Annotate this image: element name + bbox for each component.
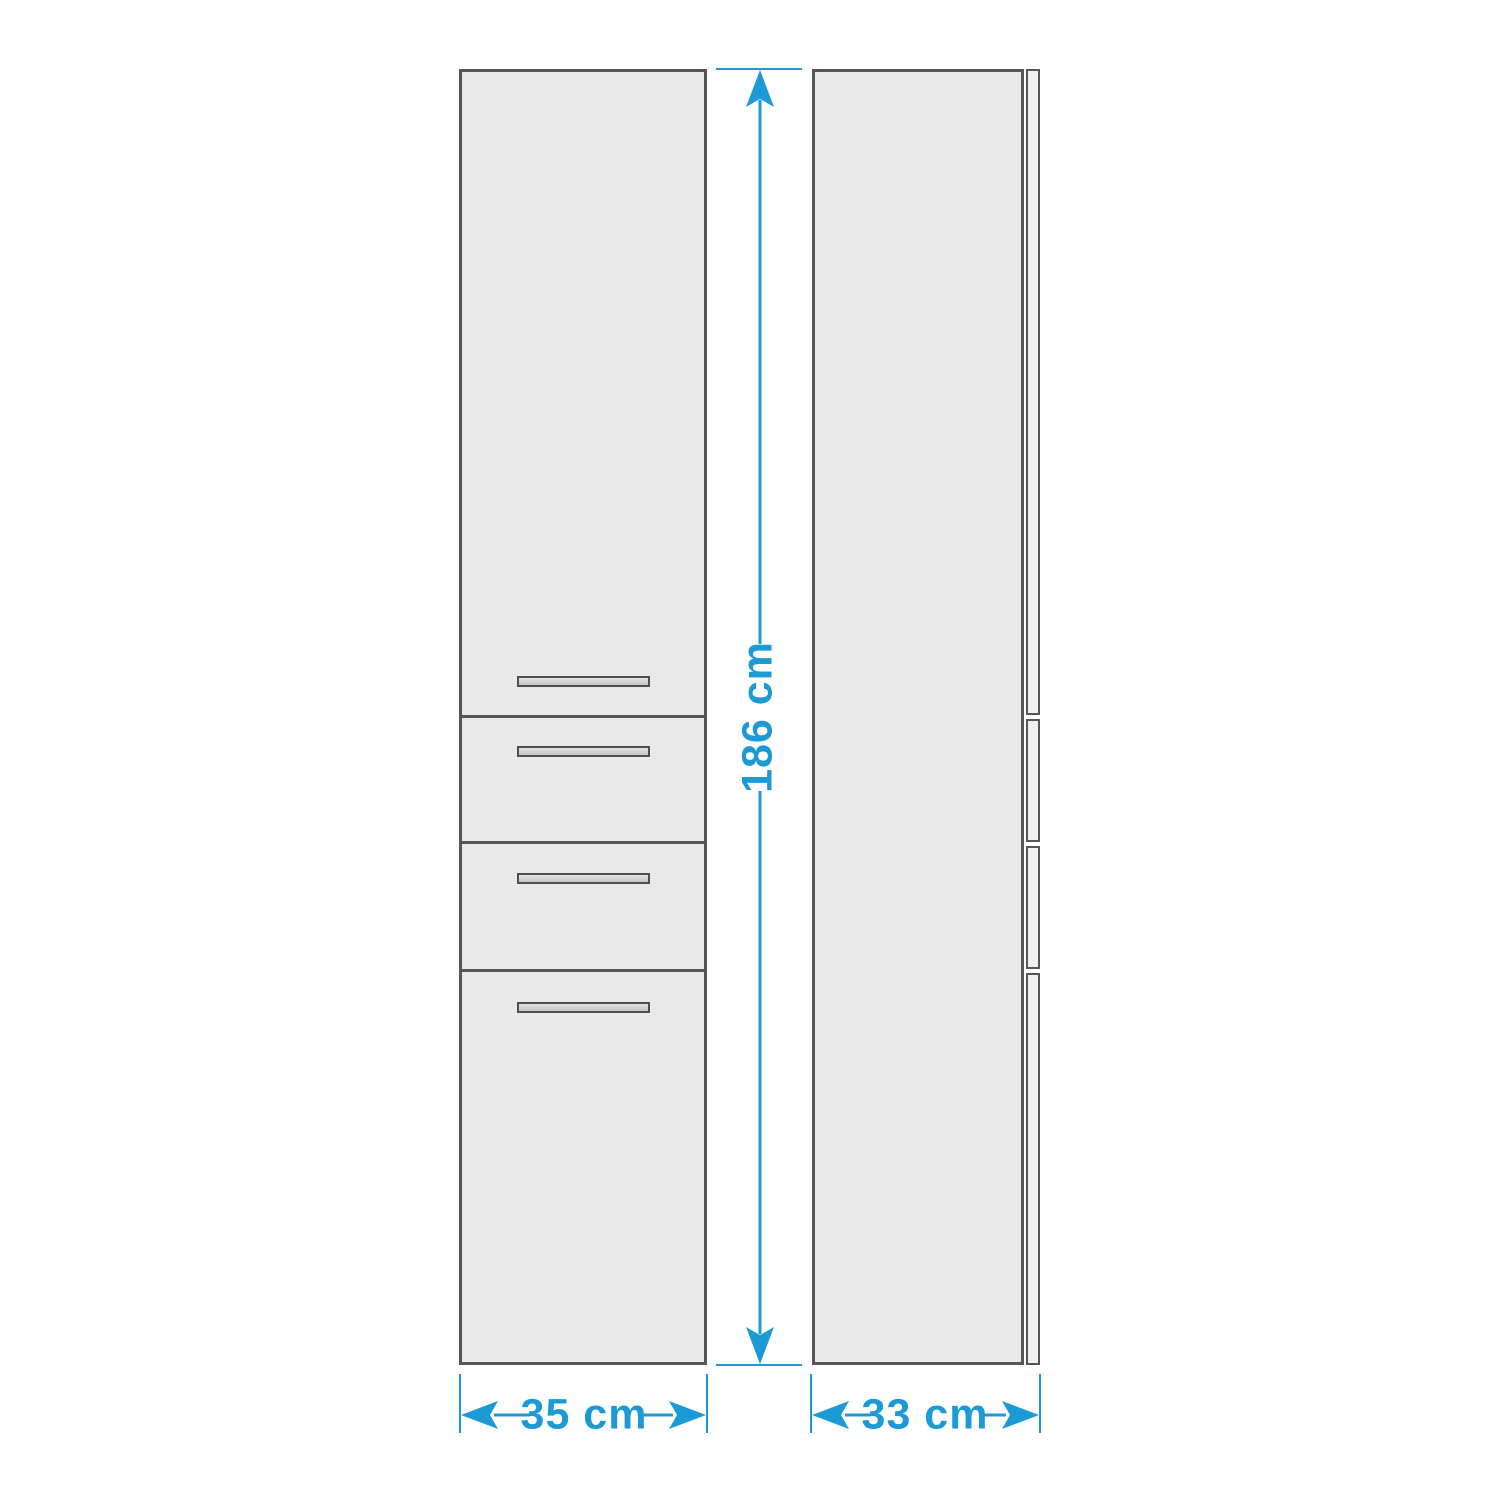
panel-divider — [459, 715, 707, 718]
drawer-2-handle — [517, 873, 650, 884]
side-door-panel-segment — [1026, 973, 1040, 1365]
panel-divider — [459, 841, 707, 844]
side-drawer-panel-segment — [1026, 846, 1040, 969]
cabinet-side-view — [812, 69, 1024, 1365]
arrow-down-icon — [746, 1327, 774, 1364]
arrow-right-icon — [669, 1401, 706, 1429]
width-dimension-label: 35 cm — [521, 1391, 648, 1440]
arrow-right-icon — [1002, 1401, 1039, 1429]
arrow-up-icon — [746, 70, 774, 107]
bottom-door-handle — [517, 1002, 650, 1013]
top-door-handle — [517, 676, 650, 687]
arrow-left-icon — [461, 1401, 498, 1429]
side-door-panel-segment — [1026, 69, 1040, 715]
side-drawer-panel-segment — [1026, 719, 1040, 842]
arrow-left-icon — [812, 1401, 849, 1429]
panel-divider — [459, 969, 707, 972]
height-dimension-label: 186 cm — [734, 641, 783, 793]
depth-dimension-label: 33 cm — [862, 1391, 989, 1440]
drawer-1-handle — [517, 746, 650, 757]
furniture-dimension-diagram: 186 cm 35 cm 33 cm — [0, 0, 1500, 1500]
